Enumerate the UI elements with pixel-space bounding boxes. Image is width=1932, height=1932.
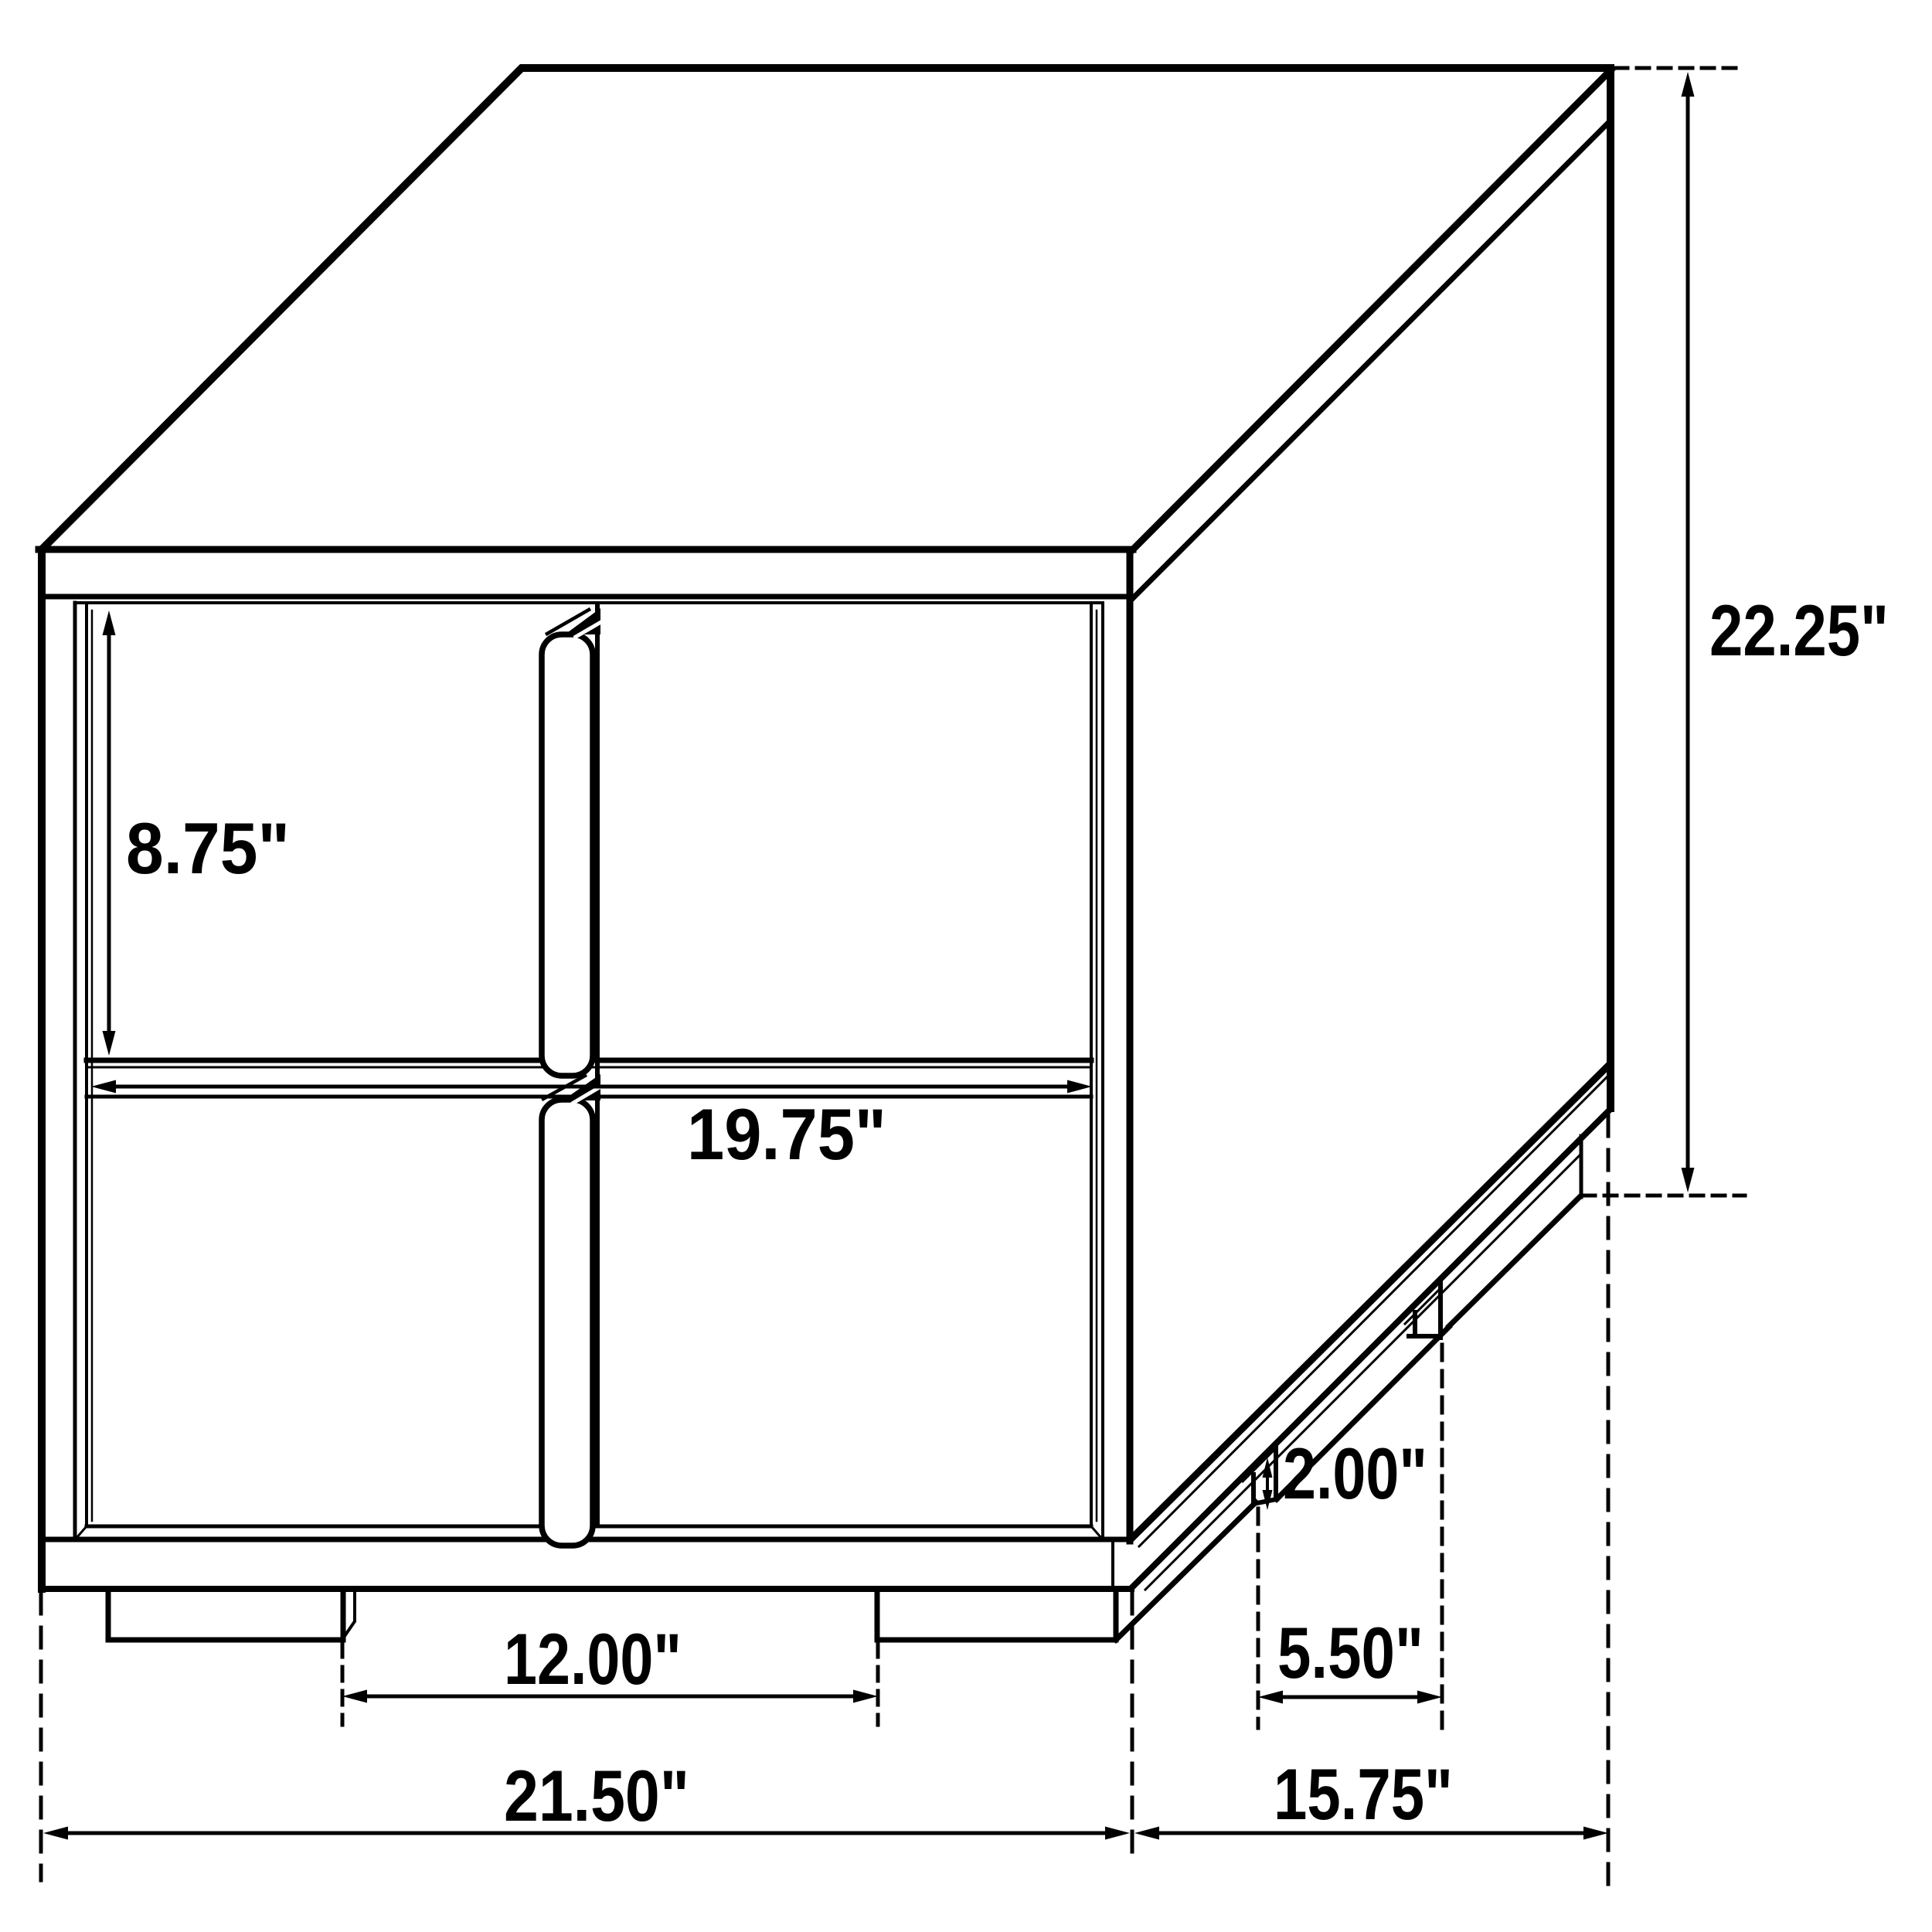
svg-text:12.00": 12.00" — [504, 1618, 682, 1699]
svg-text:19.75": 19.75" — [687, 1094, 886, 1175]
svg-text:15.75": 15.75" — [1274, 1753, 1453, 1835]
svg-text:22.25": 22.25" — [1709, 590, 1889, 671]
svg-text:2.00": 2.00" — [1283, 1433, 1427, 1514]
svg-text:21.50": 21.50" — [504, 1755, 689, 1836]
svg-text:5.50": 5.50" — [1277, 1612, 1423, 1693]
svg-text:8.75": 8.75" — [126, 808, 290, 889]
